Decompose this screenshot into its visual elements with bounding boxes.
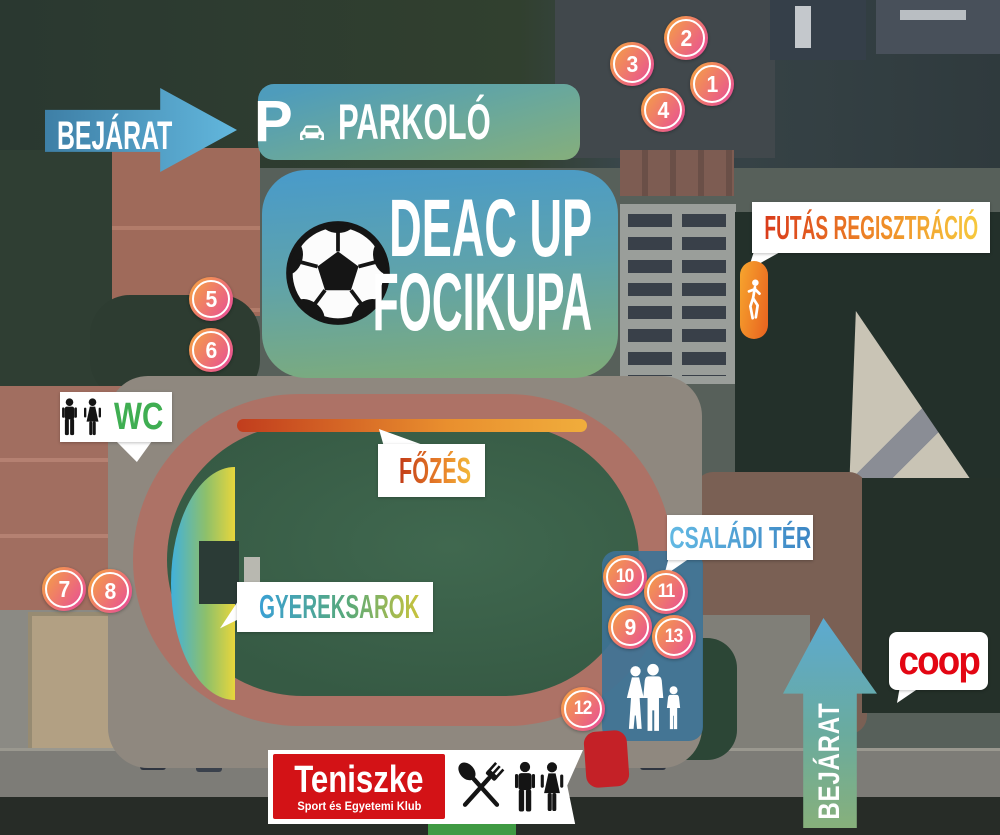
cooking-label: FŐZÉS [399,450,471,492]
kids-corner-label: GYEREKSAROK [259,588,419,626]
marker-number: 12 [574,698,592,720]
teniszke-logo-box: Teniszke Sport és Egyetemi Klub [273,754,445,819]
marker-number: 10 [616,566,634,588]
marker-number: 2 [680,25,692,52]
coop-bubble: coop [889,632,988,690]
woman-icon [83,398,102,436]
marker-number: 13 [665,626,683,648]
entrance-top-label: BEJÁRAT [57,114,172,159]
parking-lot-top-right [555,0,775,158]
marker-number: 3 [626,51,638,78]
parked-cars-col1 [628,214,672,376]
teniszke-banner: Teniszke Sport és Egyetemi Klub [268,750,583,824]
marker-5: 5 [189,277,233,321]
wc-label: WC [114,396,163,439]
event-title-line2: FOCIKUPA [372,266,592,340]
family-area-label: CSALÁDI TÉR [669,520,811,556]
marker-7: 7 [42,567,86,611]
cooking-zone-stripe [237,419,587,432]
event-title-line1: DEAC UP [360,192,592,266]
parking-p-glyph: P [254,96,293,148]
runner-pill [740,261,768,339]
stop-marker [583,730,630,789]
marker-number: 11 [658,581,675,603]
marker-9: 9 [608,605,652,649]
building-roofs-brown [620,150,734,196]
entrance-bottom-label: BEJÁRAT [813,702,847,819]
man-icon [514,761,536,813]
run-registration-banner: FUTÁS REGISZTRÁCIÓ [752,202,990,253]
woman-icon [540,761,564,813]
marker-11: 11 [644,570,688,614]
family-area-banner: CSALÁDI TÉR [667,515,813,560]
kids-corner-banner: GYEREKSAROK [237,582,433,632]
cooking-banner: FŐZÉS [378,444,485,497]
marker-10: 10 [603,555,647,599]
marker-8: 8 [88,569,132,613]
marker-13: 13 [652,615,696,659]
marker-3: 3 [610,42,654,86]
man-icon [61,398,78,436]
marker-6: 6 [189,328,233,372]
marker-number: 5 [205,286,217,313]
parking-banner: P PARKOLÓ [258,84,580,160]
marker-number: 1 [706,71,718,98]
event-map: BEJÁRAT P PARKOLÓ [0,0,1000,835]
coop-logo: coop [898,639,979,684]
roof-mark-1 [795,6,811,48]
marker-number: 9 [624,614,636,641]
marker-number: 6 [205,337,217,364]
marker-2: 2 [664,16,708,60]
marker-number: 8 [104,578,116,605]
goal-area-notch [199,541,239,604]
teniszke-name: Teniszke [294,761,423,799]
parking-label: PARKOLÓ [338,93,491,151]
marker-number: 4 [657,97,669,124]
building-top-right-2 [876,0,1000,54]
runner-icon [744,274,764,326]
family-icon [621,663,685,735]
marker-12: 12 [561,687,605,731]
building-top-right-1 [770,0,866,60]
car-icon [296,124,328,144]
marker-1: 1 [690,62,734,106]
cutlery-icon [454,758,508,816]
roof-mark-2 [900,10,966,20]
parked-cars-col2 [682,214,726,376]
run-registration-label: FUTÁS REGISZTRÁCIÓ [764,209,978,247]
teniszke-subtitle: Sport és Egyetemi Klub [297,799,421,813]
marker-4: 4 [641,88,685,132]
marker-number: 7 [58,576,70,603]
main-event-banner: DEAC UP FOCIKUPA [262,170,618,378]
wc-banner: WC [60,392,172,442]
